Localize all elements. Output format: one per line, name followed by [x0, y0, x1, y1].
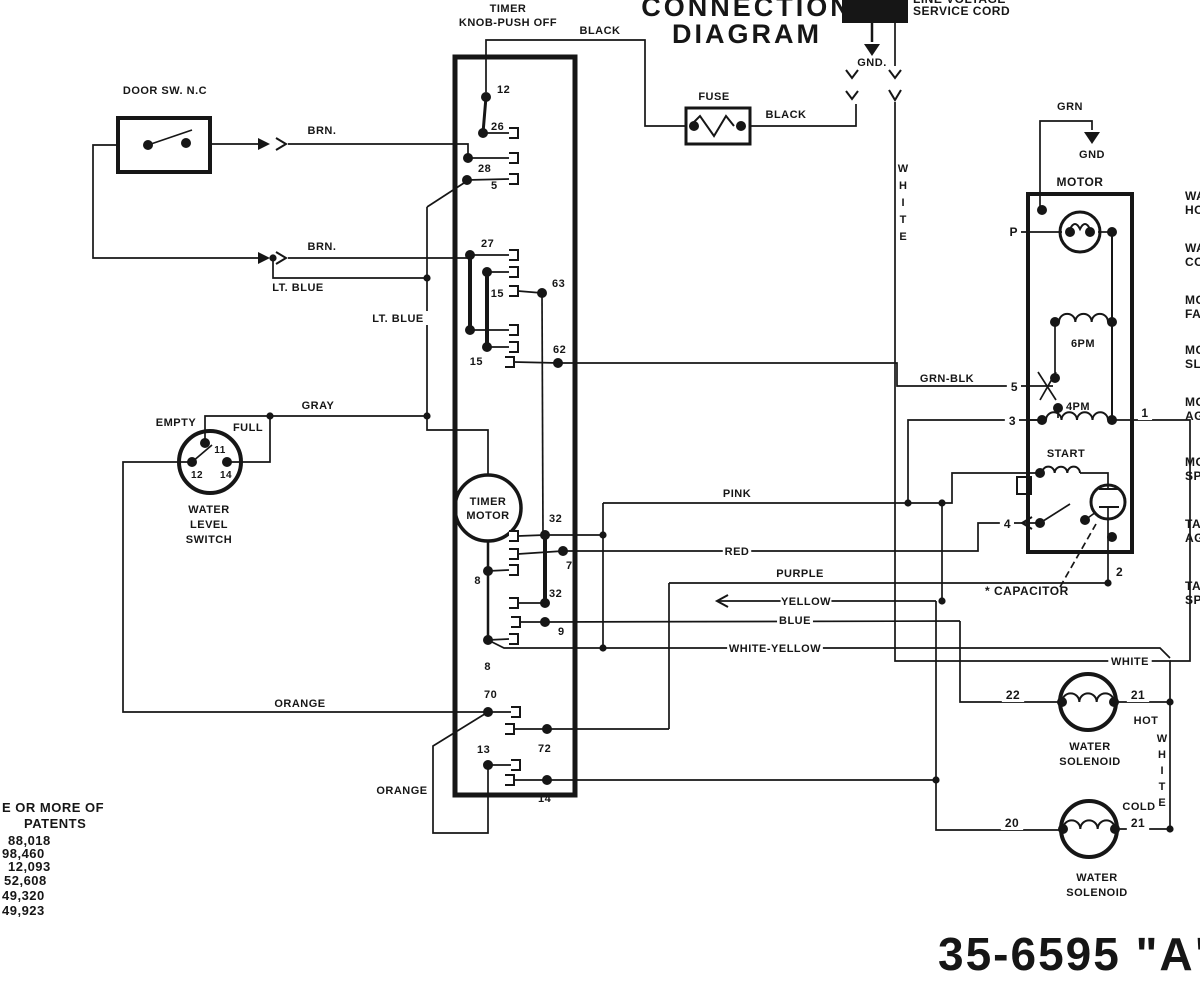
solenoid-hot-1: WATER: [1069, 741, 1110, 753]
patent-line-1: E OR MORE OF: [2, 800, 104, 815]
terminal-dot: [1107, 415, 1117, 425]
junction-dot: [1166, 698, 1173, 705]
solenoid-cold-20: 20: [1005, 816, 1019, 830]
brn-connector-arrow-1: [258, 138, 270, 150]
timer-motor-name-1: TIMER: [470, 496, 507, 508]
wls-name-2: LEVEL: [190, 519, 228, 531]
terminal-dot: [542, 775, 552, 785]
timer-contact: [509, 598, 518, 608]
terminal-dot: [1053, 403, 1063, 413]
solenoid-cold-21: 21: [1131, 816, 1145, 830]
wire-yellow: YELLOW: [781, 596, 831, 608]
terminal-70: 70: [484, 689, 497, 701]
margin-8b: SP: [1185, 593, 1200, 607]
terminal-dot: [537, 288, 547, 298]
timer-contact: [509, 174, 518, 184]
plug-disconnect-2: [846, 91, 858, 99]
terminal-14: 14: [538, 793, 552, 805]
terminal-dot: [187, 457, 197, 467]
gnd-arrow-plug: [864, 44, 880, 56]
patent-line-5: 12,093: [8, 859, 51, 874]
terminal-dot: [1035, 518, 1045, 528]
patent-line-8: 49,923: [2, 903, 45, 918]
wire-black-1: BLACK: [580, 25, 621, 37]
terminal-dot: [1057, 697, 1067, 707]
wire-white-yellow: [488, 640, 1170, 658]
terminal-9: 9: [558, 626, 565, 638]
junction-dot: [266, 412, 273, 419]
timer-contact: [509, 634, 518, 644]
gnd-plug: GND.: [857, 57, 887, 69]
terminal-dot: [482, 342, 492, 352]
timer-contact: [511, 760, 520, 770]
wire-grn-blk: GRN-BLK: [920, 373, 974, 385]
solenoid-cold-circle: [1061, 801, 1117, 857]
terminal-dot: [1050, 373, 1060, 383]
start-lead: [1080, 473, 1108, 485]
terminal-dot: [1085, 227, 1095, 237]
solenoid-hot-22: 22: [1006, 688, 1020, 702]
wire-white-v-service: T: [900, 214, 907, 226]
solenoid-cold-1: WATER: [1076, 872, 1117, 884]
wire-motor-3: [908, 420, 1042, 503]
patent-line-2: PATENTS: [24, 816, 86, 831]
timer-subtitle: KNOB-PUSH OFF: [459, 17, 557, 29]
patent-line-7: 49,320: [2, 888, 45, 903]
margin-4a: MO: [1185, 343, 1200, 357]
wire-yellow-drop: [936, 601, 1061, 830]
start-blade: [1040, 504, 1070, 523]
wire-black-top: [486, 40, 686, 126]
wire-orange-1: ORANGE: [274, 698, 325, 710]
timer-contact: [509, 325, 518, 335]
terminal-5: 5: [491, 180, 498, 192]
gnd-arrow-motor: [1084, 132, 1100, 144]
junction-dot: [904, 499, 911, 506]
timer-contact: [505, 724, 514, 734]
terminal-dot: [462, 175, 472, 185]
timer-contact: [509, 549, 518, 559]
margin-2b: CO: [1185, 255, 1200, 269]
terminal-dot: [540, 530, 550, 540]
wire-white-v-solenoid: I: [1160, 765, 1163, 777]
terminal-62: 62: [553, 344, 566, 356]
margin-8a: TA: [1185, 579, 1200, 593]
margin-1a: WA: [1185, 189, 1200, 203]
terminal-12: 12: [497, 84, 510, 96]
margin-1b: HO: [1185, 203, 1200, 217]
wire-orange-2: ORANGE: [376, 785, 427, 797]
margin-3a: MO: [1185, 293, 1200, 307]
coil-solenoid-cold: [1063, 820, 1115, 829]
solenoid-hot-2: SOLENOID: [1059, 756, 1120, 768]
capacitor-leader: [1060, 524, 1096, 587]
plug-disconnect-1: [846, 70, 858, 78]
wire-brn-2: BRN.: [308, 241, 337, 253]
solenoid-hot-21: 21: [1131, 688, 1145, 702]
margin-5a: MO: [1185, 395, 1200, 409]
terminal-dot: [1109, 697, 1119, 707]
brn-connector-chevron-1: [276, 138, 286, 150]
terminal-8b: 8: [484, 661, 491, 673]
junction-dot: [938, 499, 945, 506]
drawing-number: 35-6595 "A": [938, 928, 1200, 980]
connection-diagram-page: CONNECTIONDIAGRAMLINE VOLTAGESERVICE COR…: [0, 0, 1200, 988]
wire-slant-5: [427, 181, 467, 207]
wire-white-v-solenoid: E: [1158, 797, 1165, 809]
timer-contact: [509, 286, 518, 296]
lead-7: [518, 551, 563, 554]
timer-contact: [509, 267, 518, 277]
wire-brn-1: BRN.: [308, 125, 337, 137]
terminal-dot: [553, 358, 563, 368]
terminal-63: 63: [552, 278, 565, 290]
wire-lt-blue-1: [273, 258, 427, 278]
terminal-27: 27: [481, 238, 494, 250]
motor-start: START: [1047, 448, 1085, 460]
plug-disconnect-4: [889, 90, 901, 100]
margin-3b: FA: [1185, 307, 1200, 321]
terminal-dot: [482, 267, 492, 277]
motor-terminal-4: 4: [1004, 517, 1011, 531]
terminal-28: 28: [478, 163, 491, 175]
margin-4b: SL: [1185, 357, 1200, 371]
motor-terminal-p: P: [1009, 225, 1018, 239]
terminal-dot: [689, 121, 699, 131]
terminal-dot: [483, 566, 493, 576]
timer-contact: [511, 617, 520, 627]
wire-black-2: BLACK: [766, 109, 807, 121]
timer-contact: [509, 128, 518, 138]
wire-motor-1: [1132, 420, 1190, 661]
coil-4pm: [1046, 412, 1108, 420]
terminal-dot: [1050, 317, 1060, 327]
solenoid-hot-circle: [1060, 674, 1116, 730]
solenoid-cold-2: SOLENOID: [1066, 887, 1127, 899]
timer-contact: [511, 707, 520, 717]
wire-white-v-service: E: [899, 231, 906, 243]
terminal-dot: [1058, 824, 1068, 834]
timer-motor-name-2: MOTOR: [466, 510, 509, 522]
junction-dot: [423, 412, 430, 419]
terminal-dot: [181, 138, 191, 148]
door-switch-box: [118, 118, 210, 172]
coil-6pm: [1059, 314, 1108, 322]
terminal-dot: [1035, 468, 1045, 478]
wire-orange-main: [123, 462, 488, 712]
brn-connector-arrow-2: [258, 252, 270, 264]
capacitor-label: * CAPACITOR: [985, 584, 1069, 598]
wire-white-v-service: W: [898, 163, 909, 175]
timer-contact: [509, 250, 518, 260]
terminal-32b: 32: [549, 588, 562, 600]
wire-lt-blue-2: LT. BLUE: [372, 313, 423, 325]
junction-dot: [1166, 825, 1173, 832]
terminal-7: 7: [566, 560, 573, 572]
timer-contact: [509, 342, 518, 352]
wls-name-3: SWITCH: [186, 534, 232, 546]
junction-dot: [423, 274, 430, 281]
terminal-dot: [1110, 824, 1120, 834]
coil-solenoid-hot: [1062, 693, 1114, 702]
terminal-dot: [222, 457, 232, 467]
wls-empty: EMPTY: [156, 417, 197, 429]
junction-dot: [599, 644, 606, 651]
junction-dot: [932, 776, 939, 783]
terminal-32a: 32: [549, 513, 562, 525]
margin-7b: AG: [1185, 531, 1200, 545]
terminal-dot: [465, 325, 475, 335]
wls-full: FULL: [233, 422, 263, 434]
timer-contact: [509, 565, 518, 575]
terminal-dot: [481, 92, 491, 102]
wire-white-v-service: H: [899, 180, 907, 192]
terminal-15a: 15: [491, 288, 504, 300]
wire-blue: [545, 621, 960, 622]
wire-blue: BLUE: [779, 615, 811, 627]
timer-contact: [505, 775, 514, 785]
title-line-2: DIAGRAM: [672, 19, 822, 49]
solenoid-cold-name: COLD: [1122, 801, 1155, 813]
wire-orange-jumper: [433, 712, 488, 833]
coil-start: [1042, 467, 1080, 473]
lead-5: [467, 179, 509, 180]
wls-name-1: WATER: [188, 504, 229, 516]
timer-box: [455, 57, 575, 795]
margin-6a: MOT: [1185, 455, 1200, 469]
terminal-dot: [483, 760, 493, 770]
terminal-72: 72: [538, 743, 551, 755]
junction-dot: [599, 531, 606, 538]
terminal-dot: [558, 546, 568, 556]
wire-lt-blue-1: LT. BLUE: [272, 282, 323, 294]
terminal-dot: [200, 438, 210, 448]
connection-diagram: CONNECTIONDIAGRAMLINE VOLTAGESERVICE COR…: [0, 0, 1200, 988]
terminal-8a: 8: [474, 575, 481, 587]
terminal-dot: [143, 140, 153, 150]
terminal-dot: [1037, 205, 1047, 215]
terminal-dot: [1107, 532, 1117, 542]
terminal-dot: [1080, 515, 1090, 525]
motor-terminal-3: 3: [1009, 414, 1016, 428]
terminal-dot: [483, 635, 493, 645]
wire-pink: PINK: [723, 488, 751, 500]
terminal-dot: [736, 121, 746, 131]
terminal-dot: [1065, 227, 1075, 237]
fuse-label: FUSE: [698, 91, 729, 103]
motor-terminal-1: 1: [1141, 406, 1148, 420]
patent-line-6: 52,608: [4, 873, 47, 888]
timer-title: TIMER: [490, 3, 527, 15]
wire-white-v-solenoid: W: [1157, 733, 1168, 745]
terminal-dot: [465, 250, 475, 260]
terminal-dot: [540, 617, 550, 627]
terminal-dot: [478, 128, 488, 138]
margin-7a: TA: [1185, 517, 1200, 531]
wire-brn-upper-b: [288, 144, 468, 158]
plug-disconnect-3: [889, 70, 901, 78]
motor-coil-4pm: 4PM: [1066, 401, 1090, 413]
terminal-15b: 15: [470, 356, 483, 368]
terminal-26: 26: [491, 121, 504, 133]
junction-dot: [269, 254, 276, 261]
wire-grn-blk: [558, 363, 1053, 386]
wire-gray: GRAY: [302, 400, 335, 412]
wire-white-v-solenoid: H: [1158, 749, 1166, 761]
wls-terminal-14: 14: [220, 470, 232, 481]
link-12-26: [483, 97, 486, 133]
gnd-motor: GND: [1079, 149, 1105, 161]
terminal-dot: [1107, 317, 1117, 327]
terminal-dot: [542, 724, 552, 734]
wire-white-v-solenoid: T: [1159, 781, 1166, 793]
wls-terminal-12: 12: [191, 470, 203, 481]
lead-62: [514, 362, 558, 363]
terminal-dot: [483, 707, 493, 717]
wls-terminal-11: 11: [214, 445, 226, 456]
wire-white-yellow: WHITE-YELLOW: [729, 643, 821, 655]
junction-dot: [1104, 579, 1111, 586]
junction-dot: [938, 597, 945, 604]
margin-6b: SPI: [1185, 469, 1200, 483]
capacitor-terminal-2: 2: [1116, 565, 1123, 579]
margin-5b: AGI: [1185, 409, 1200, 423]
wire-grn-ground: [1040, 121, 1092, 212]
terminal-dot: [463, 153, 473, 163]
motor-title: MOTOR: [1057, 175, 1104, 189]
timer-contact: [505, 357, 514, 367]
timer-contact: [509, 531, 518, 541]
solenoid-hot-name: HOT: [1134, 715, 1159, 727]
terminal-dot: [1037, 415, 1047, 425]
motor-box: [1028, 194, 1132, 552]
wire-purple: PURPLE: [776, 568, 824, 580]
brn-connector-chevron-2: [276, 252, 286, 264]
wire-red: RED: [725, 546, 750, 558]
wire-pink: [603, 473, 1040, 503]
door-switch-label: DOOR SW. N.C: [123, 85, 207, 97]
terminal-13: 13: [477, 744, 490, 756]
wire-red: [563, 523, 1022, 551]
motor-terminal-5: 5: [1011, 380, 1018, 394]
terminal-dot: [1107, 227, 1117, 237]
timer-contact: [509, 153, 518, 163]
wire-grn: GRN: [1057, 101, 1083, 113]
margin-2a: WA: [1185, 241, 1200, 255]
motor-coil-6pm: 6PM: [1071, 338, 1095, 350]
wire-white-h: WHITE: [1111, 656, 1149, 668]
vert-63: [542, 293, 543, 535]
service-cord-line-2: SERVICE CORD: [913, 4, 1010, 18]
wire-white-v-service: I: [901, 197, 904, 209]
